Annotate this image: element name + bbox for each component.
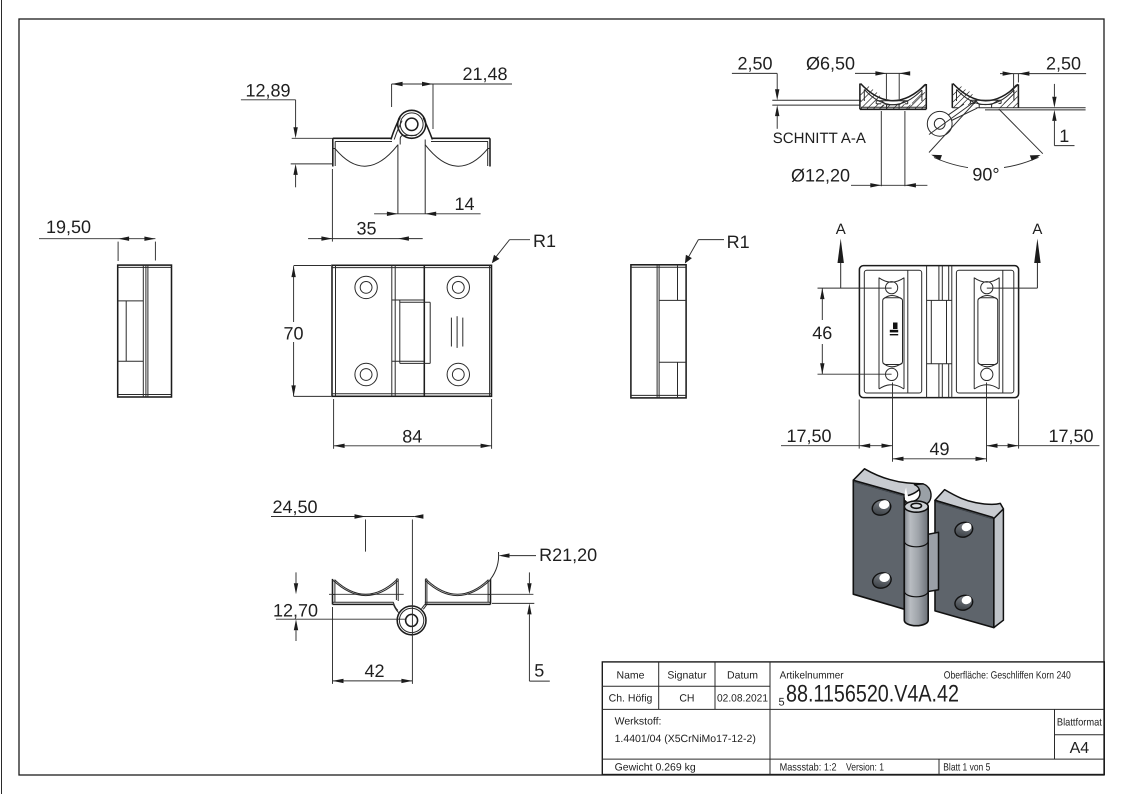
svg-text:Blattformat: Blattformat bbox=[1057, 717, 1102, 729]
svg-text:35: 35 bbox=[356, 219, 376, 239]
svg-text:Ø12,20: Ø12,20 bbox=[791, 166, 850, 186]
svg-text:70: 70 bbox=[283, 324, 303, 344]
svg-text:02.08.2021: 02.08.2021 bbox=[717, 693, 768, 705]
svg-text:17,50: 17,50 bbox=[786, 426, 831, 446]
svg-text:Datum: Datum bbox=[727, 670, 758, 682]
svg-text:19,50: 19,50 bbox=[46, 217, 91, 237]
svg-text:R1: R1 bbox=[727, 232, 750, 252]
svg-text:14: 14 bbox=[454, 194, 474, 214]
svg-text:90°: 90° bbox=[972, 165, 999, 185]
svg-text:CH: CH bbox=[679, 693, 694, 705]
svg-text:21,48: 21,48 bbox=[462, 64, 507, 84]
svg-text:2,50: 2,50 bbox=[737, 54, 772, 74]
svg-text:17,50: 17,50 bbox=[1048, 426, 1093, 446]
svg-text:Oberfläche: Geschliffen Korn: Oberfläche: Geschliffen Korn 240 bbox=[944, 670, 1071, 682]
svg-text:Name: Name bbox=[616, 670, 644, 682]
svg-text:Gewicht 0.269 kg: Gewicht 0.269 kg bbox=[615, 762, 696, 774]
svg-text:Blatt 1 von 5: Blatt 1 von 5 bbox=[943, 762, 990, 774]
svg-text:Werkstoff:: Werkstoff: bbox=[615, 716, 662, 728]
svg-text:SCHNITT A-A: SCHNITT A-A bbox=[773, 130, 866, 147]
svg-text:Signatur: Signatur bbox=[667, 670, 707, 682]
svg-text:R21,20: R21,20 bbox=[539, 545, 597, 565]
svg-text:2,50: 2,50 bbox=[1046, 54, 1081, 74]
svg-text:A: A bbox=[1032, 221, 1042, 238]
svg-text:A: A bbox=[836, 221, 846, 238]
svg-text:1.4401/04 (X5CrNiMo17-12-2): 1.4401/04 (X5CrNiMo17-12-2) bbox=[615, 733, 756, 745]
svg-text:Massstab: 1:2: Massstab: 1:2 bbox=[780, 762, 837, 774]
svg-text:46: 46 bbox=[812, 323, 832, 343]
svg-text:5: 5 bbox=[779, 697, 785, 709]
svg-text:R1: R1 bbox=[533, 231, 556, 251]
svg-text:Version: 1: Version: 1 bbox=[846, 762, 884, 774]
svg-text:49: 49 bbox=[929, 439, 949, 459]
svg-text:42: 42 bbox=[364, 661, 384, 681]
svg-text:84: 84 bbox=[402, 427, 422, 447]
svg-text:A4: A4 bbox=[1070, 740, 1090, 757]
svg-text:88.1156520.V4A.42: 88.1156520.V4A.42 bbox=[786, 681, 959, 708]
svg-text:Ch. Höfig: Ch. Höfig bbox=[609, 693, 653, 705]
svg-text:Ø6,50: Ø6,50 bbox=[806, 54, 855, 74]
svg-text:5: 5 bbox=[534, 661, 544, 681]
svg-text:1: 1 bbox=[1059, 126, 1069, 146]
svg-text:12,89: 12,89 bbox=[245, 81, 290, 101]
svg-text:24,50: 24,50 bbox=[272, 497, 317, 517]
svg-text:12,70: 12,70 bbox=[273, 601, 318, 621]
